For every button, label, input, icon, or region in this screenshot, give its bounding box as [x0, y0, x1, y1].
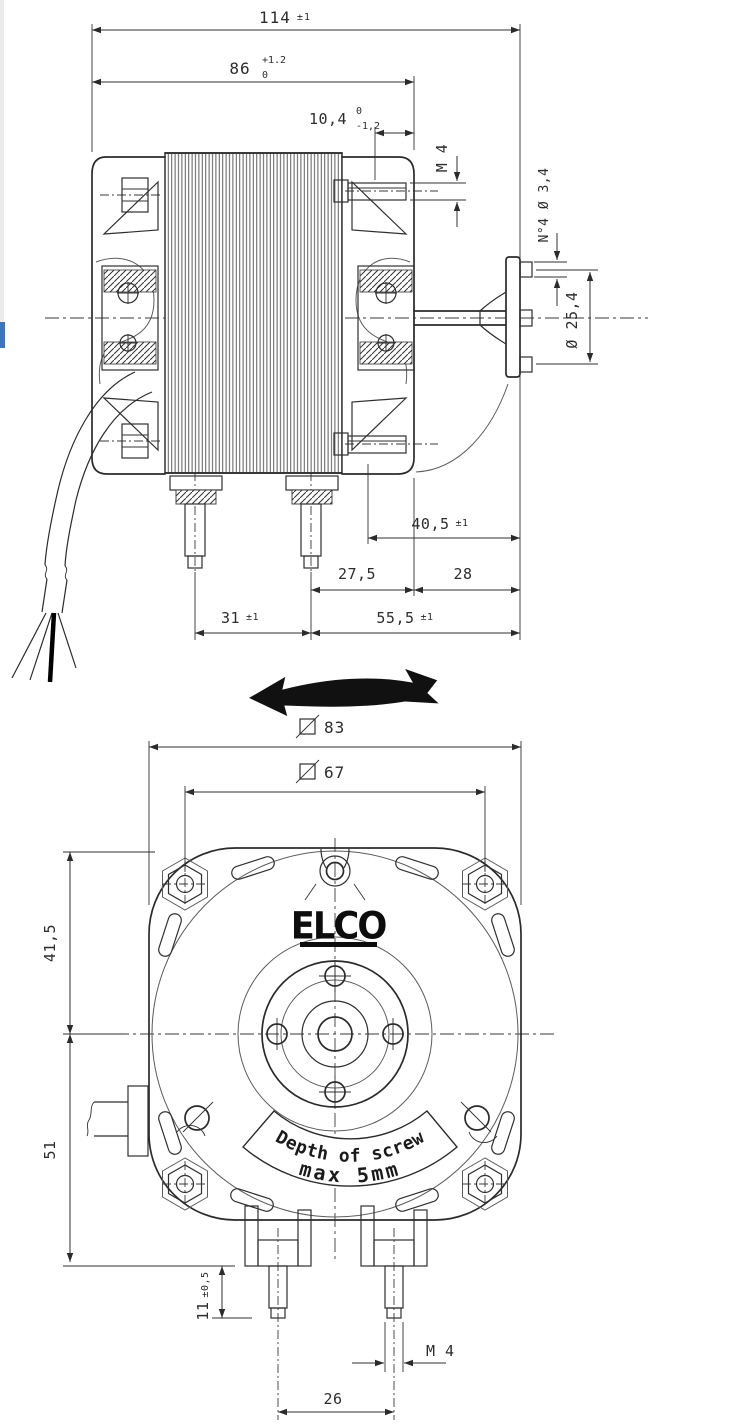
dim-shaft-to-face: 40,5±1 — [411, 515, 468, 533]
square-slash-icon — [296, 760, 319, 783]
curved-double-arrow-icon — [248, 668, 440, 717]
dim-face-to-shaft-end: 28 — [453, 565, 472, 583]
elco-logo: ELCO — [291, 904, 387, 948]
motor-dimension-drawing: 114±1 86 +1.2 0 10,4 0 -1,2 M 4 N°4 Ø 3,… — [0, 0, 750, 1426]
dim-bolt-circle: Ø 25,4 — [563, 291, 581, 348]
dim-overall-length: 114±1 — [259, 8, 311, 27]
black-wire — [50, 613, 54, 682]
dim-mount-square: 67 — [324, 763, 345, 782]
power-cable — [12, 372, 152, 682]
dim-body-length: 86 — [229, 59, 250, 78]
page-edge-strip — [0, 0, 4, 322]
left-stud — [245, 1206, 311, 1420]
stator-stack — [165, 153, 342, 473]
dim-stud-to-shaft-end: 55,5±1 — [376, 609, 433, 627]
dim-hub-depth: 10,4 — [309, 110, 347, 128]
dim-outer-square: 83 — [324, 718, 345, 737]
logo-underline — [300, 942, 377, 947]
technical-drawing-canvas: 114±1 86 +1.2 0 10,4 0 -1,2 M 4 N°4 Ø 3,… — [0, 0, 750, 1426]
dim-stud-to-face: 27,5 — [338, 565, 376, 583]
dim-body-length-tol-upper: +1.2 — [262, 55, 286, 66]
dim-stud-spacing: 26 — [323, 1390, 342, 1408]
side-view-studs — [170, 476, 338, 568]
front-view: Depth of screw max 5mm ELCO — [41, 715, 558, 1420]
dim-stud-thread: M 4 — [426, 1342, 455, 1360]
dim-stud-spacing: 31±1 — [221, 609, 259, 627]
page-edge-blue-strip — [0, 322, 5, 348]
logo-text: ELCO — [291, 904, 387, 948]
right-end-shield — [334, 157, 414, 474]
shaft-and-flange — [414, 257, 532, 472]
dim-flange-holes: N°4 Ø 3,4 — [537, 168, 552, 243]
front-view-studs — [245, 1206, 427, 1420]
dim-center-to-top: 41,5 — [41, 924, 59, 962]
dim-top-stud-thread: M 4 — [433, 144, 451, 173]
left-shaft-stub — [87, 1086, 148, 1156]
dim-body-length-tol-lower: 0 — [262, 70, 268, 81]
side-view: 114±1 86 +1.2 0 10,4 0 -1,2 M 4 N°4 Ø 3,… — [12, 8, 648, 682]
dim-hub-depth-tol-lower: -1,2 — [356, 121, 380, 132]
screw-depth-banner: Depth of screw max 5mm — [243, 1111, 457, 1188]
dim-center-to-bottom: 51 — [41, 1140, 59, 1159]
square-slash-icon — [296, 715, 319, 738]
right-stud — [361, 1206, 427, 1420]
dim-stud-length: 11±0,5 — [194, 1271, 212, 1320]
dim-hub-depth-tol-upper: 0 — [356, 106, 362, 117]
left-end-shield — [92, 157, 165, 474]
